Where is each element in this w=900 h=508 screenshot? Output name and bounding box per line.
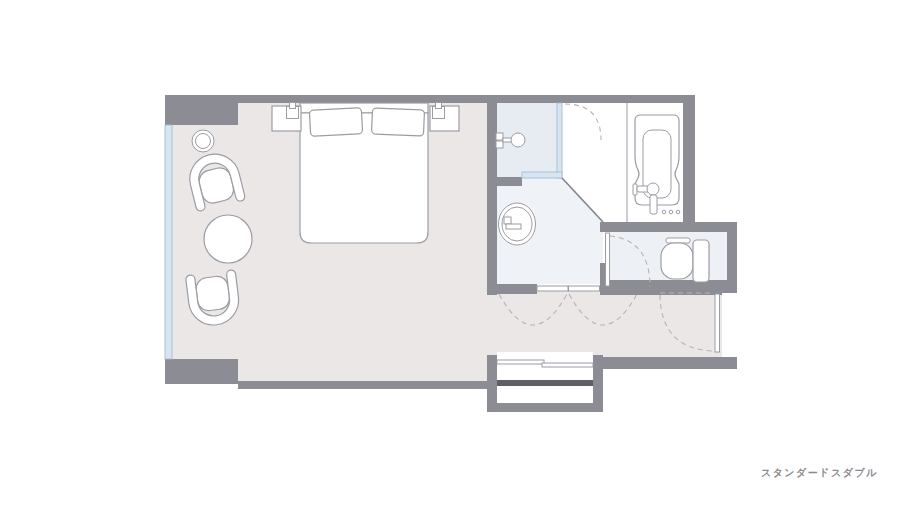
pillow-right bbox=[371, 108, 424, 136]
floor-lamp bbox=[192, 130, 214, 152]
double-bed bbox=[300, 103, 428, 243]
plan-caption: スタンダードスダブル bbox=[761, 466, 878, 480]
shower-glass-corner bbox=[522, 172, 562, 178]
entrance-steps bbox=[497, 352, 593, 403]
pillow-left bbox=[309, 108, 362, 137]
entrance-door bbox=[715, 294, 720, 352]
floor-plan bbox=[0, 0, 900, 508]
round-table bbox=[204, 215, 252, 263]
shower-glass-partition bbox=[557, 103, 562, 178]
toilet-door bbox=[606, 233, 610, 286]
genkan-step-bar bbox=[497, 380, 593, 386]
bathtub bbox=[633, 115, 680, 214]
basin-faucet bbox=[504, 217, 511, 224]
step-edge-upper bbox=[497, 360, 544, 364]
entrance-doorway bbox=[722, 293, 737, 357]
toilet bbox=[661, 238, 709, 282]
double-door-right-panel bbox=[569, 286, 600, 291]
washbasin bbox=[499, 203, 536, 245]
toilet-bowl bbox=[661, 243, 693, 279]
tub-drain-dots bbox=[662, 210, 680, 214]
toilet-tank bbox=[693, 240, 709, 282]
double-door-left-panel bbox=[537, 286, 568, 291]
floor-plan-svg bbox=[0, 0, 900, 508]
step-edge-lower bbox=[542, 363, 593, 367]
window bbox=[165, 125, 172, 359]
shower-room-floor bbox=[497, 103, 562, 183]
toilet-lid bbox=[666, 238, 690, 243]
